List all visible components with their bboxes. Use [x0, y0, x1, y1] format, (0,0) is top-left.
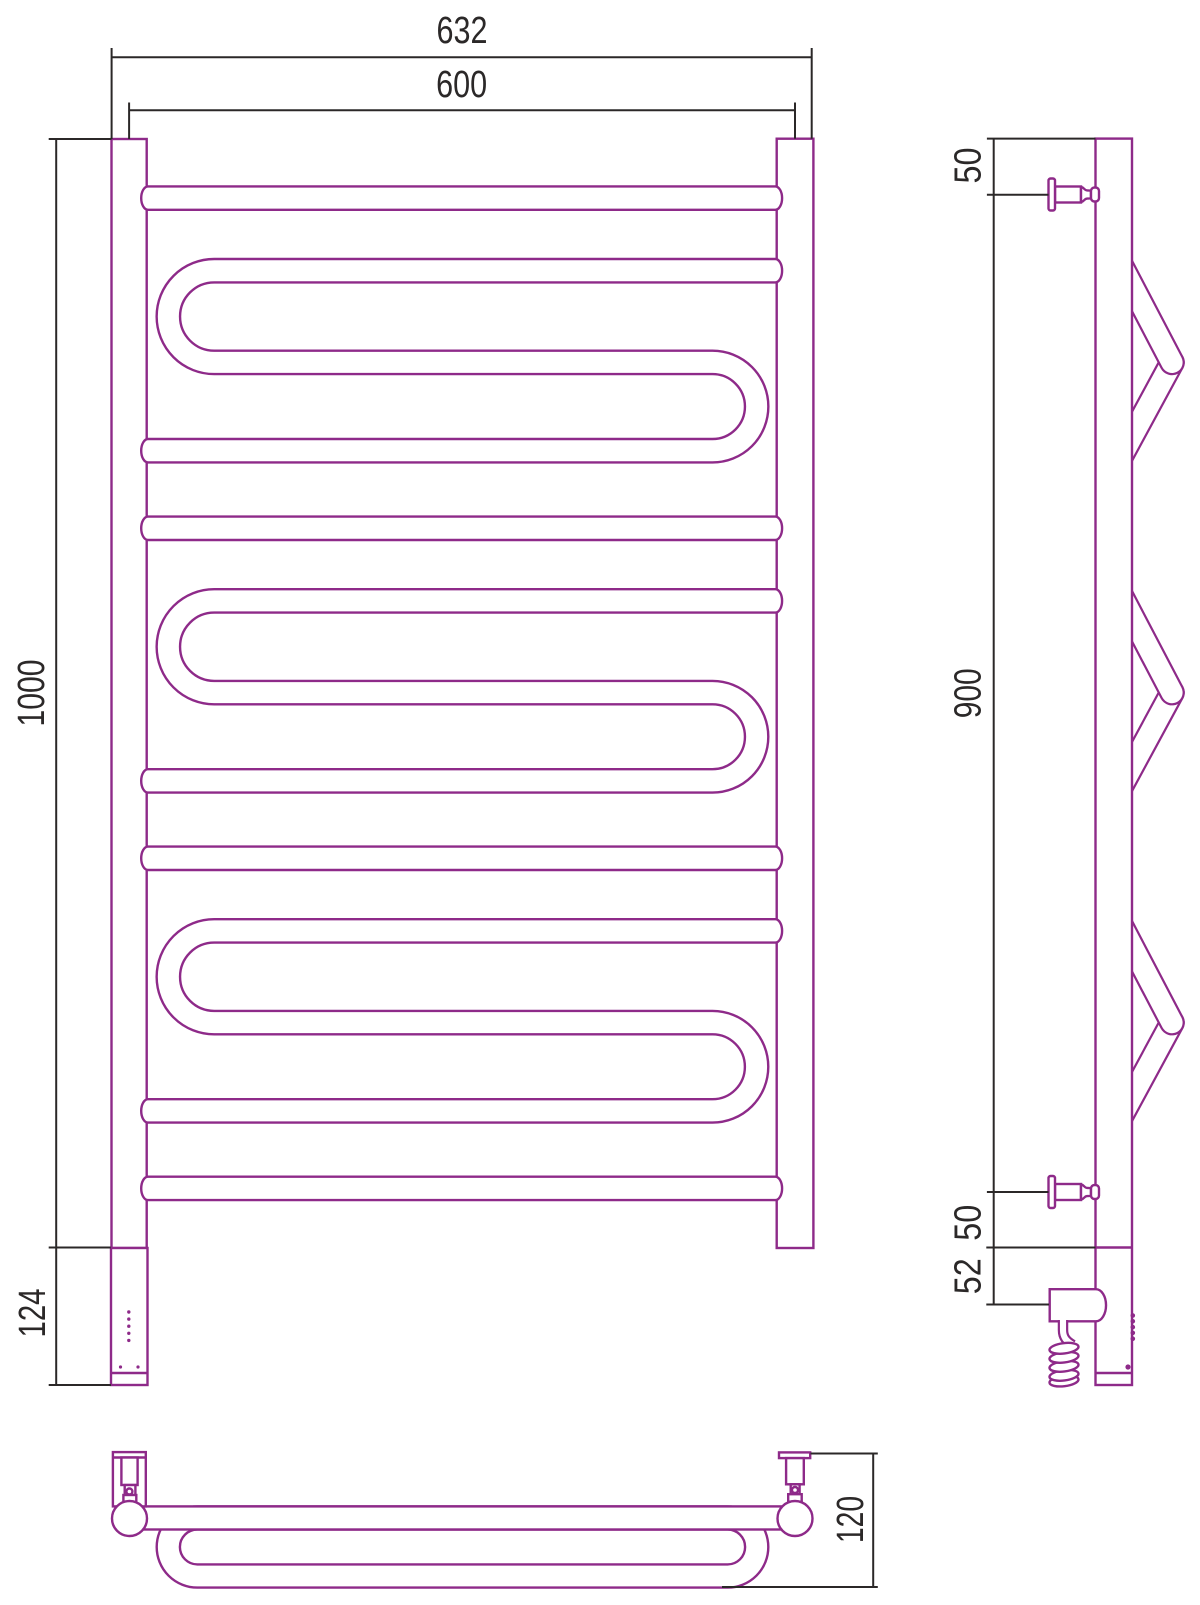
svg-text:600: 600 [436, 64, 487, 106]
svg-text:120: 120 [830, 1496, 872, 1543]
svg-text:50: 50 [948, 148, 990, 184]
svg-text:632: 632 [437, 10, 488, 52]
svg-text:50: 50 [948, 1205, 990, 1241]
svg-text:124: 124 [12, 1289, 54, 1338]
svg-text:900: 900 [948, 668, 990, 718]
svg-text:52: 52 [948, 1258, 990, 1294]
svg-text:1000: 1000 [11, 660, 53, 727]
